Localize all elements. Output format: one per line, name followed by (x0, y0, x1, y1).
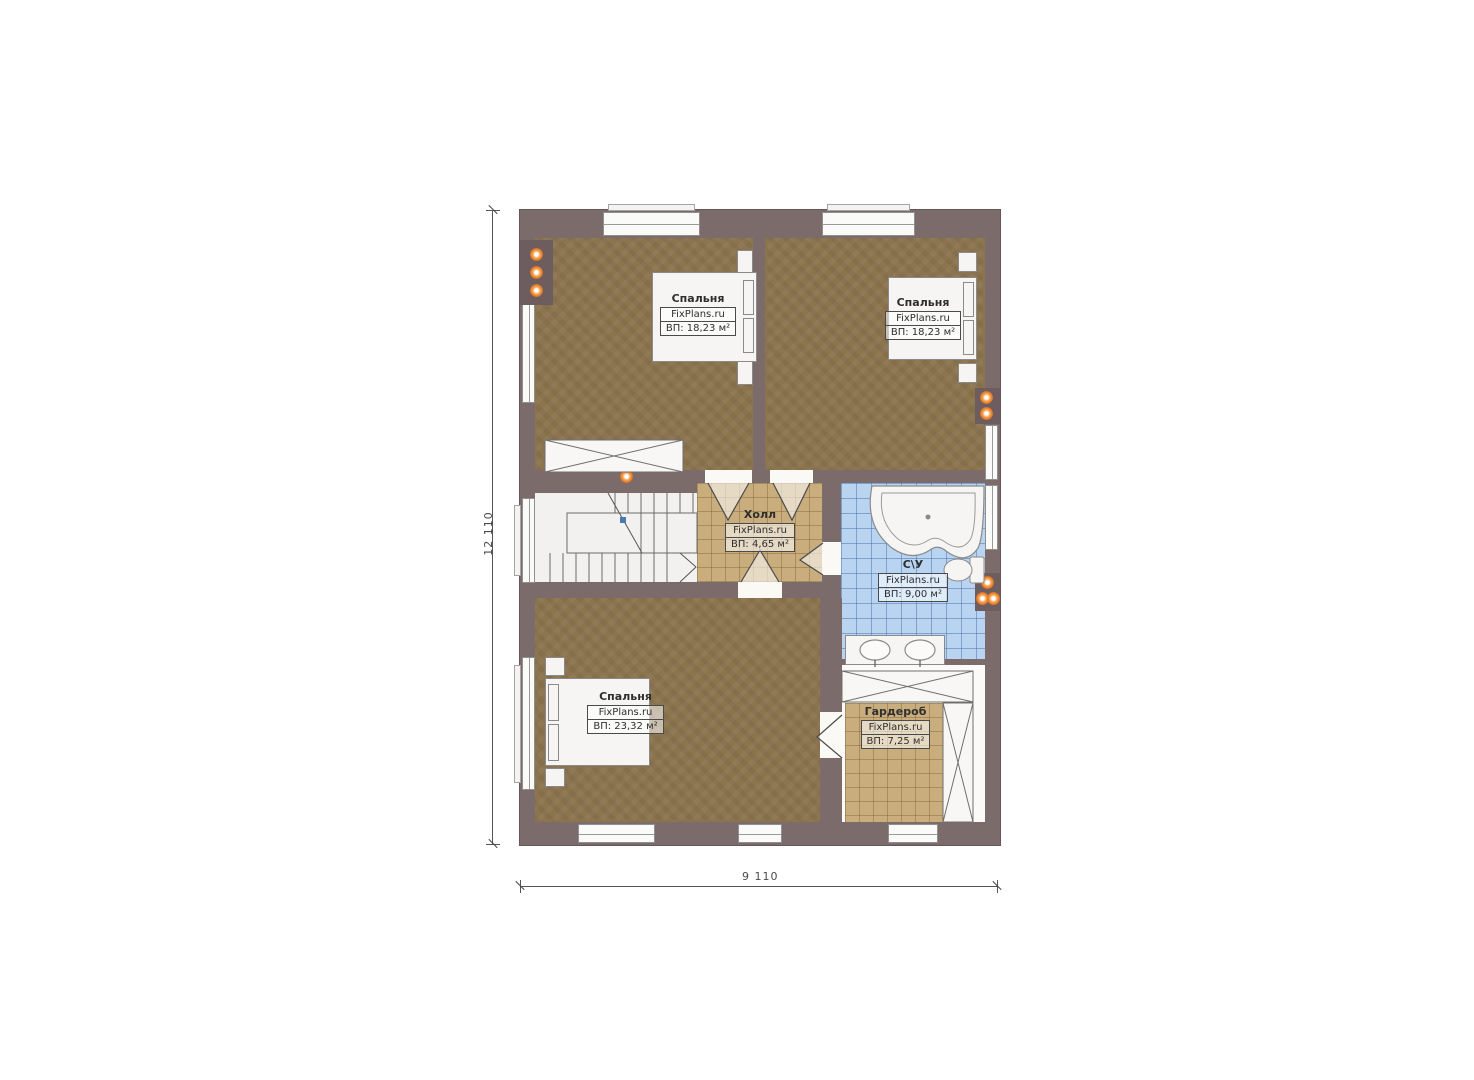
room-area: ВП: 18,23 м² (886, 325, 960, 339)
wall-bedroom-wardrobe-lower (820, 758, 842, 822)
outlet-marker (987, 592, 1000, 605)
wall-top (520, 210, 1000, 238)
outlet-marker (980, 391, 993, 404)
label-box: FixPlans.ru ВП: 9,00 м² (878, 573, 948, 602)
window-sill (514, 505, 521, 576)
outlet-marker (530, 248, 543, 261)
outlet-marker (980, 407, 993, 420)
window-left-stairs (522, 498, 535, 583)
label-box: FixPlans.ru ВП: 23,32 м² (587, 705, 663, 734)
window-right-bathroom (985, 485, 998, 550)
pillow (548, 684, 559, 721)
window-bottom-left (578, 824, 655, 843)
floorplan-page: { "plan": { "brand": "FixPlans.ru", "dim… (0, 0, 1474, 1080)
room-name: Спальня (638, 292, 758, 305)
window-top-right (822, 212, 915, 236)
room-label-bathroom: С\У FixPlans.ru ВП: 9,00 м² (868, 558, 958, 602)
window-left-bedroom-tl (522, 302, 535, 403)
window-sill (608, 204, 695, 211)
door-gap-bedroom-tl (705, 470, 752, 483)
wall-hall-bath-lower (822, 575, 841, 598)
watermark: FixPlans.ru (661, 308, 735, 321)
stairwell-floor (535, 493, 697, 582)
window-bottom-mid (738, 824, 782, 843)
room-area: ВП: 18,23 м² (661, 321, 735, 335)
label-box: FixPlans.ru ВП: 18,23 м² (885, 311, 961, 340)
outlet-marker (620, 470, 633, 483)
nightstand (958, 252, 977, 272)
label-box: FixPlans.ru ВП: 4,65 м² (725, 523, 795, 552)
door-gap-bedroom-b (738, 582, 782, 598)
room-label-hall: Холл FixPlans.ru ВП: 4,65 м² (715, 508, 805, 552)
room-label-bedroom-tr: Спальня FixPlans.ru ВП: 18,23 м² (863, 296, 983, 340)
watermark: FixPlans.ru (862, 721, 930, 734)
watermark: FixPlans.ru (886, 312, 960, 325)
room-name: Гардероб (848, 705, 943, 718)
window-left-bedroom-b (522, 657, 535, 790)
dimension-width-label: 9 110 (742, 870, 779, 883)
window-bottom-right (888, 824, 938, 843)
room-name: С\У (868, 558, 958, 571)
window-sill (514, 665, 521, 783)
wall-hall-bottom-right (782, 582, 822, 598)
room-area: ВП: 9,00 м² (879, 587, 947, 601)
wall-bedroom-wardrobe-upper (820, 598, 842, 712)
window-right-bedroom-tr (985, 425, 998, 480)
wall-hall-bath-upper (822, 483, 841, 542)
dimension-line (520, 886, 998, 887)
room-area: ВП: 4,65 м² (726, 537, 794, 551)
wall-hall-bottom-left (535, 582, 738, 598)
room-name: Спальня (863, 296, 983, 309)
pillow (548, 724, 559, 761)
nightstand (545, 657, 565, 676)
watermark: FixPlans.ru (588, 706, 662, 719)
door-gap-bathroom (822, 543, 841, 575)
floor-plan: Спальня FixPlans.ru ВП: 18,23 м² Спальня… (520, 210, 1000, 845)
outlet-marker (530, 284, 543, 297)
room-area: ВП: 23,32 м² (588, 719, 662, 733)
window-top-left (603, 212, 700, 236)
window-sill (827, 204, 910, 211)
watermark: FixPlans.ru (726, 524, 794, 537)
dimension-height-label: 12 110 (482, 511, 495, 556)
nightstand (958, 363, 977, 383)
room-name: Спальня (568, 690, 683, 703)
label-box: FixPlans.ru ВП: 18,23 м² (660, 307, 736, 336)
wall-above-stairs (535, 483, 697, 493)
door-gap-bedroom-tr (770, 470, 813, 483)
sink-counter (845, 635, 945, 665)
outlet-marker (530, 266, 543, 279)
nightstand (545, 768, 565, 787)
watermark: FixPlans.ru (879, 574, 947, 587)
room-label-bedroom-b: Спальня FixPlans.ru ВП: 23,32 м² (568, 690, 683, 734)
room-label-wardrobe: Гардероб FixPlans.ru ВП: 7,25 м² (848, 705, 943, 749)
outlet-marker (981, 576, 994, 589)
room-label-bedroom-tl: Спальня FixPlans.ru ВП: 18,23 м² (638, 292, 758, 336)
room-area: ВП: 7,25 м² (862, 734, 930, 748)
wall-mid-horizontal (535, 470, 985, 483)
door-gap-wardrobe (820, 712, 842, 758)
label-box: FixPlans.ru ВП: 7,25 м² (861, 720, 931, 749)
room-name: Холл (715, 508, 805, 521)
